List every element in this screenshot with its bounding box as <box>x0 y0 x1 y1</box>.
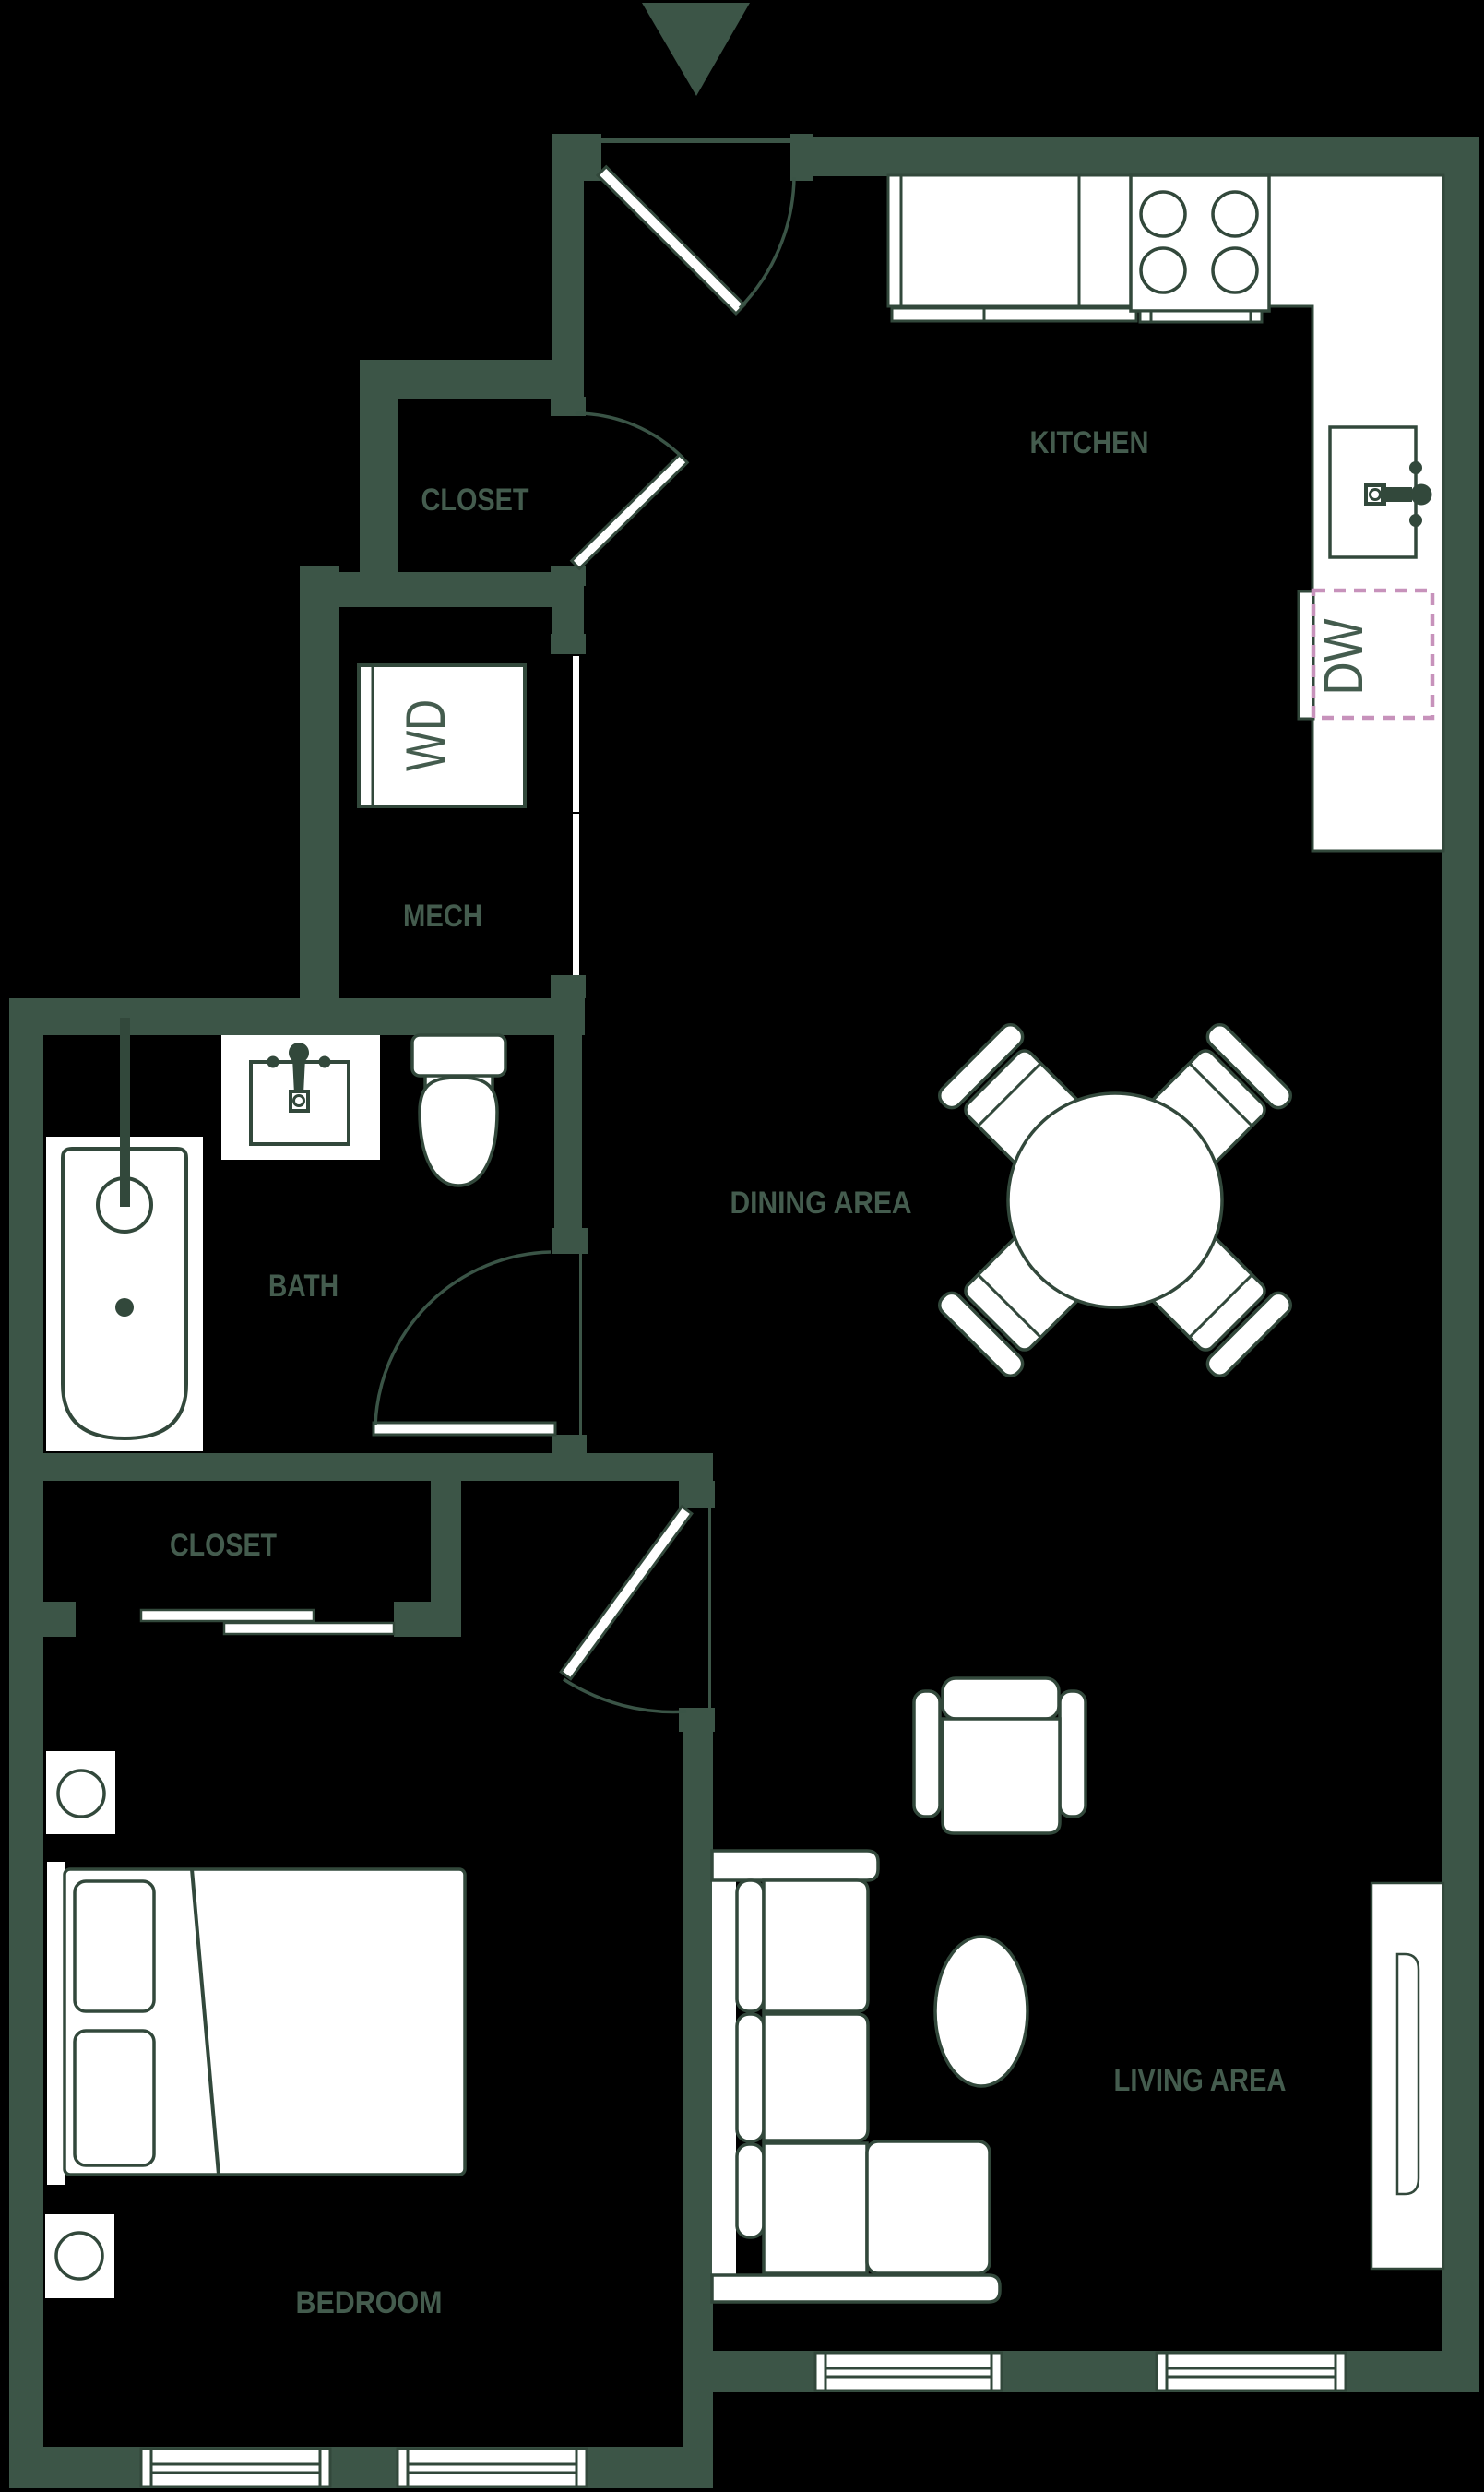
svg-text:KITCHEN: KITCHEN <box>1030 425 1149 460</box>
svg-text:WD: WD <box>395 699 457 771</box>
svg-text:DW: DW <box>1312 618 1374 695</box>
svg-text:CLOSET: CLOSET <box>170 1528 277 1563</box>
svg-text:CLOSET: CLOSET <box>421 483 529 518</box>
svg-text:MECH: MECH <box>403 899 482 934</box>
svg-text:BATH: BATH <box>268 1269 338 1304</box>
svg-text:DINING AREA: DINING AREA <box>730 1186 912 1221</box>
svg-text:LIVING AREA: LIVING AREA <box>1114 2063 1287 2098</box>
svg-text:BEDROOM: BEDROOM <box>296 2285 443 2320</box>
